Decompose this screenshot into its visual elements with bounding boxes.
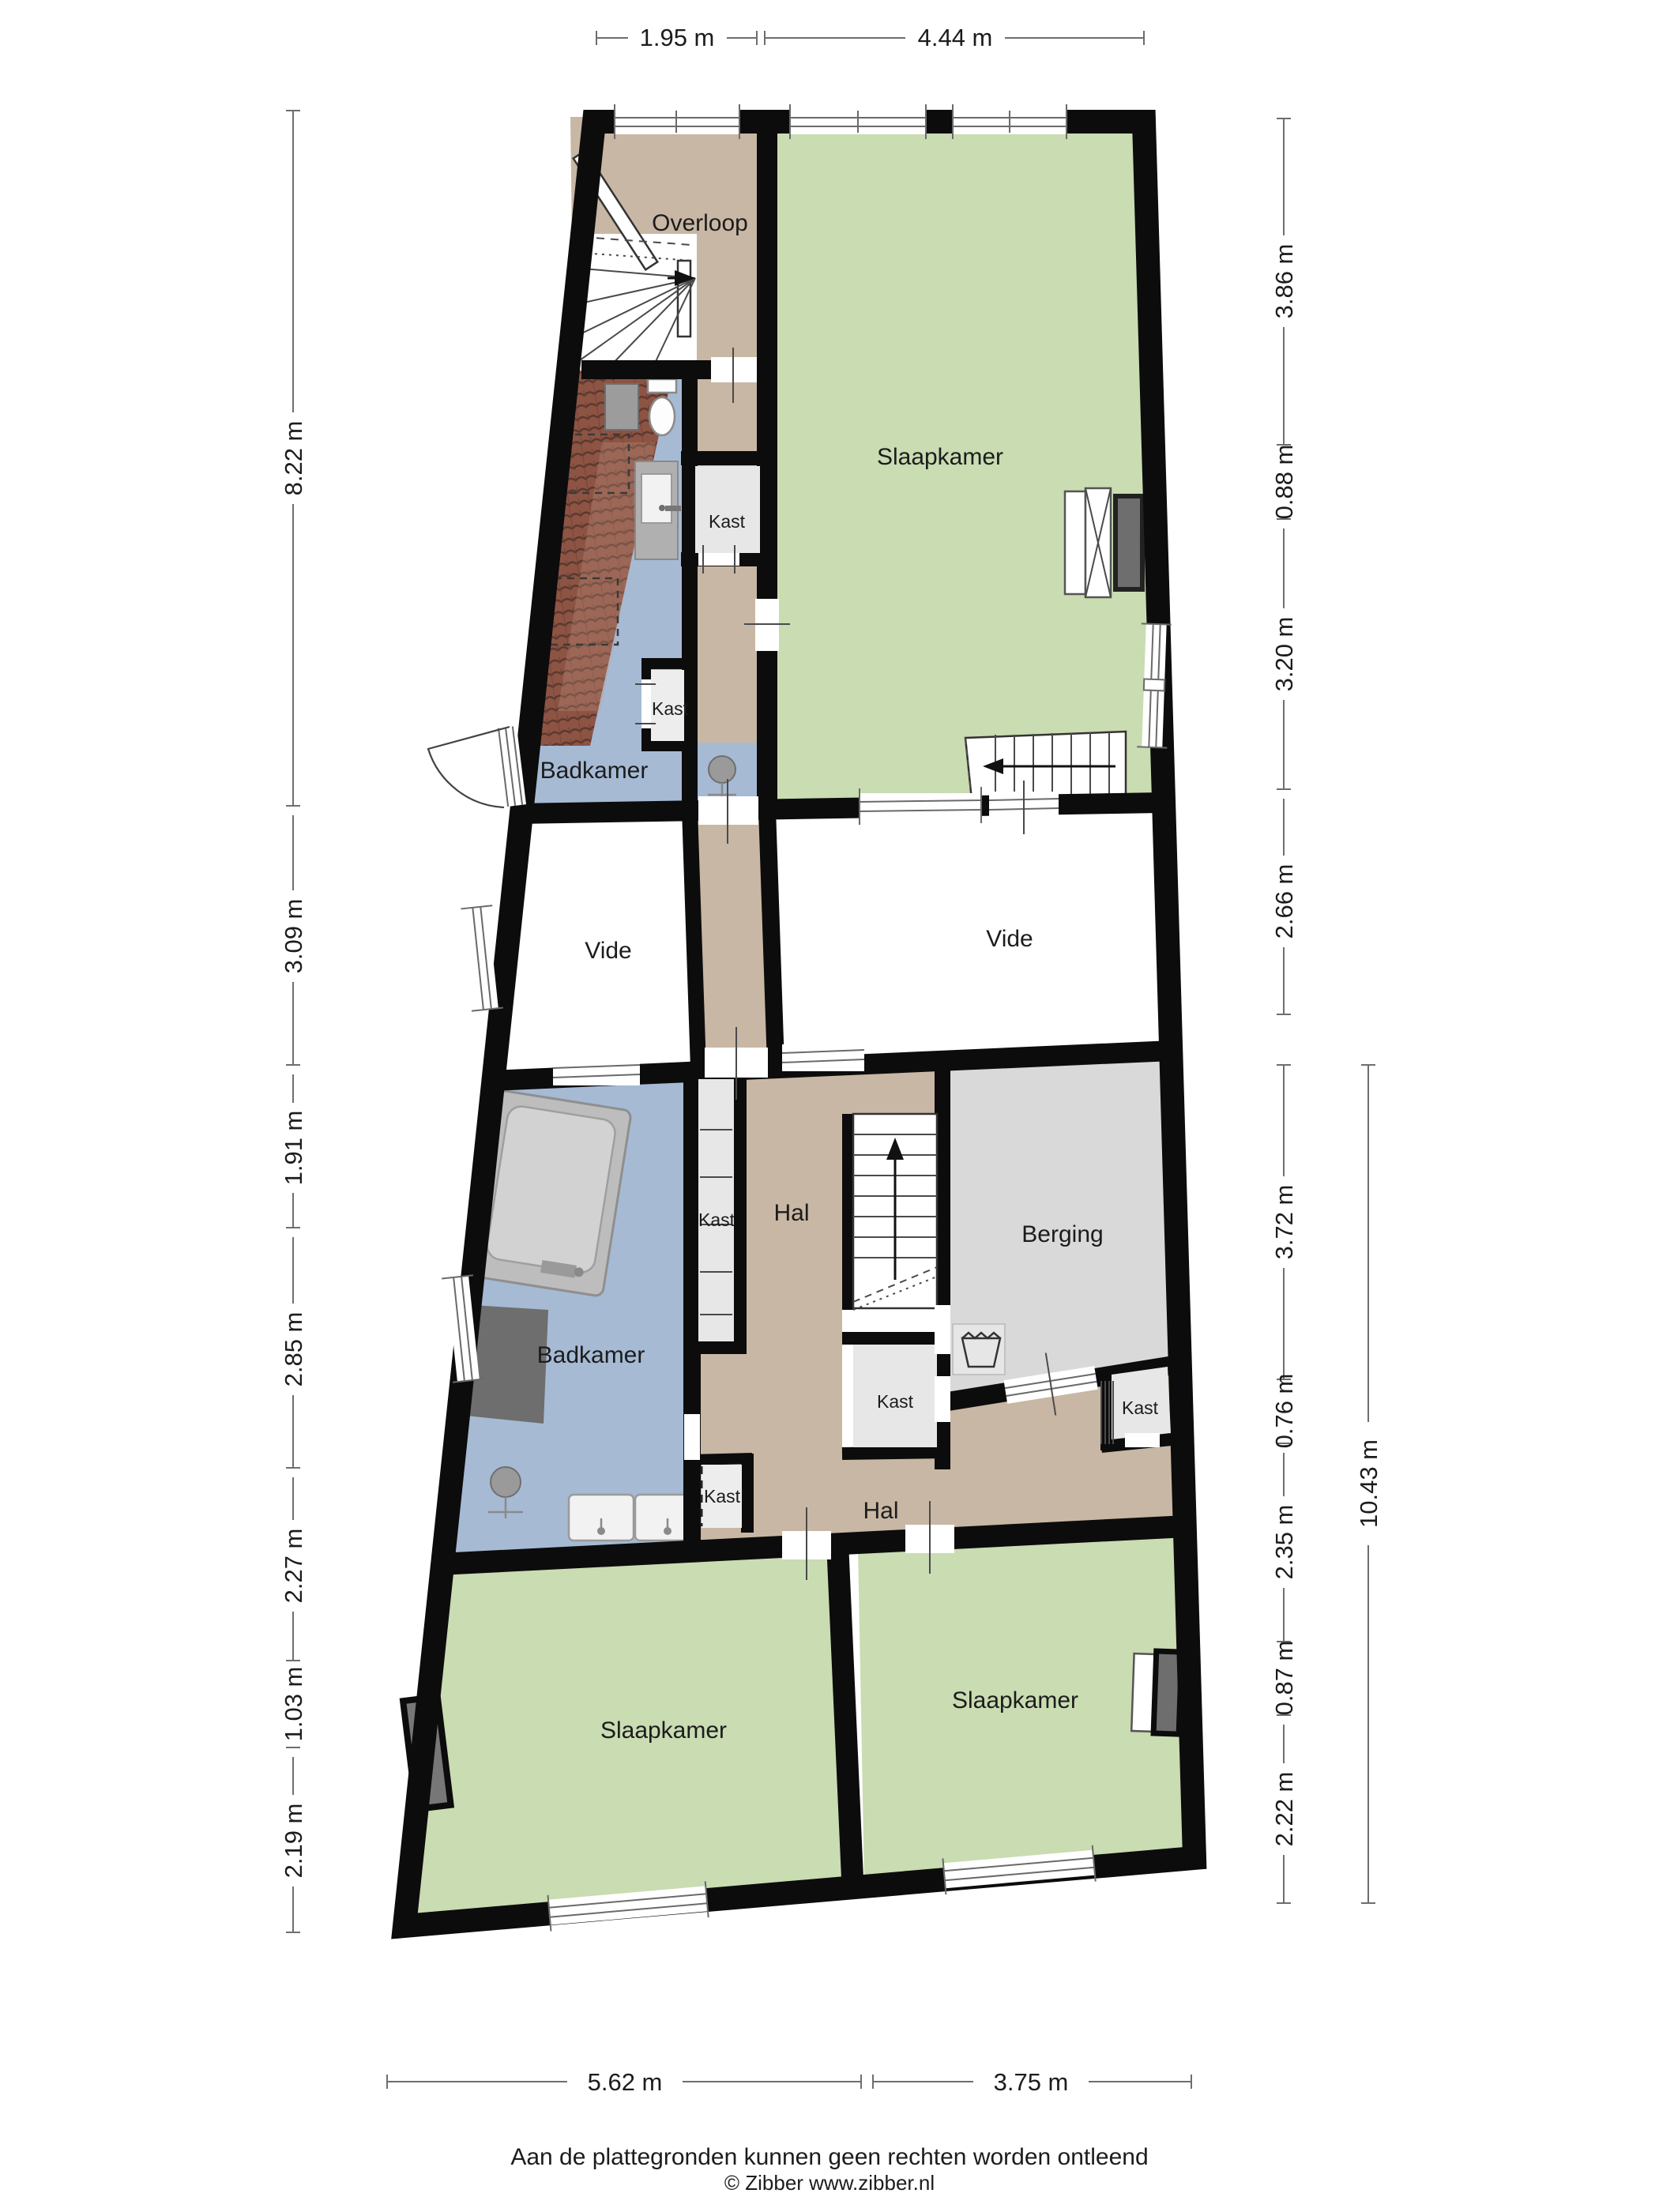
radiator-icon (1131, 1650, 1182, 1734)
washing-machine-icon (953, 1324, 1005, 1375)
floor-plan-svg: Overloop Slaapkamer Kast Kast Badkamer V… (0, 0, 1659, 2212)
dim-right-9: 2.22 m (1270, 1772, 1298, 1847)
duct (605, 384, 638, 430)
stairs-icon-hal (853, 1114, 937, 1310)
label-slaapkamer-rechts: Slaapkamer (952, 1687, 1078, 1714)
label-kast-top2: Kast (652, 698, 689, 719)
dim-left-3: 1.91 m (280, 1111, 307, 1186)
label-vide-right: Vide (986, 926, 1033, 952)
wardrobe-icon (1065, 488, 1111, 597)
label-badkamer-top: Badkamer (540, 758, 649, 784)
door-kast2 (641, 679, 651, 728)
label-kast-top1: Kast (709, 511, 746, 532)
dim-right-1: 3.86 m (1270, 244, 1298, 319)
footer: Aan de plattegronden kunnen geen rechten… (510, 2144, 1148, 2195)
dim-left-5: 2.27 m (280, 1529, 307, 1604)
label-berging: Berging (1021, 1221, 1103, 1247)
label-overloop: Overloop (652, 210, 748, 236)
dim-top-2: 4.44 m (918, 24, 993, 51)
double-sink-icon (569, 1495, 700, 1540)
dim-top-1: 1.95 m (640, 24, 715, 51)
dim-left-4: 2.85 m (280, 1312, 307, 1387)
label-hal-boven: Hal (773, 1200, 809, 1226)
door-badkamer-mid (684, 1414, 700, 1460)
dim-right-4: 2.66 m (1270, 864, 1298, 939)
room-vide-right (773, 807, 1163, 1062)
label-kast-mid: Kast (698, 1209, 735, 1230)
window-h2-left (553, 1060, 640, 1085)
door-berging (935, 1305, 950, 1354)
dim-right-total: 10.43 m (1355, 1065, 1382, 1903)
toilet-icon (648, 379, 676, 435)
window-top-3 (953, 104, 1066, 139)
floor-plan-page: Overloop Slaapkamer Kast Kast Badkamer V… (0, 0, 1659, 2212)
window-h2-right (782, 1044, 864, 1071)
kast-top1-floor (695, 466, 760, 553)
dim-left-7: 2.19 m (280, 1804, 307, 1879)
label-hal-onder: Hal (863, 1498, 898, 1524)
label-badkamer-mid: Badkamer (537, 1342, 645, 1368)
dim-left-6: 1.03 m (280, 1667, 307, 1742)
door-kast5 (1125, 1433, 1160, 1447)
window-top-2 (790, 104, 926, 139)
footer-disclaimer: Aan de plattegronden kunnen geen rechten… (510, 2144, 1148, 2170)
dim-right-6: 0.76 m (1270, 1374, 1298, 1449)
sink-icon (635, 461, 681, 559)
dim-right-7: 2.35 m (1270, 1505, 1298, 1580)
dim-bottom-1: 5.62 m (588, 2068, 663, 2096)
dim-right-8: 0.87 m (1270, 1641, 1298, 1716)
dim-right-5: 3.72 m (1270, 1185, 1298, 1260)
dim-bottom: 5.62 m 3.75 m (387, 2068, 1191, 2096)
label-slaapkamer-links: Slaapkamer (600, 1717, 727, 1744)
dim-left-1: 8.22 m (280, 421, 307, 496)
stairs-icon-bedroom (965, 732, 1126, 799)
dim-bottom-2: 3.75 m (994, 2068, 1069, 2096)
dim-right: 3.86 m 0.88 m 3.20 m 2.66 m 3.72 m 0.76 … (1270, 118, 1298, 1903)
dim-right-2: 0.88 m (1270, 445, 1298, 520)
floor-fills (411, 117, 1183, 1917)
label-kast-onder-trap: Kast (877, 1391, 914, 1412)
label-slaapkamer-top: Slaapkamer (877, 444, 1003, 470)
dim-left-2: 3.09 m (280, 899, 307, 974)
label-kast-wastafels: Kast (704, 1486, 741, 1507)
dim-left: 8.22 m 3.09 m 1.91 m 2.85 m 2.27 m 1.03 … (280, 111, 307, 1932)
footer-copyright: © Zibber www.zibber.nl (724, 2171, 935, 2195)
door-kast1 (698, 553, 739, 566)
label-kast-rechts: Kast (1122, 1398, 1159, 1418)
dim-right-total: 10.43 m (1355, 1439, 1382, 1528)
radiator-icon (1115, 496, 1142, 589)
window-top-1 (615, 104, 739, 139)
label-vide-left: Vide (585, 938, 632, 964)
dim-right-3: 3.20 m (1270, 617, 1298, 692)
dim-top: 1.95 m 4.44 m (596, 24, 1144, 51)
door-kast4 (935, 1376, 950, 1422)
